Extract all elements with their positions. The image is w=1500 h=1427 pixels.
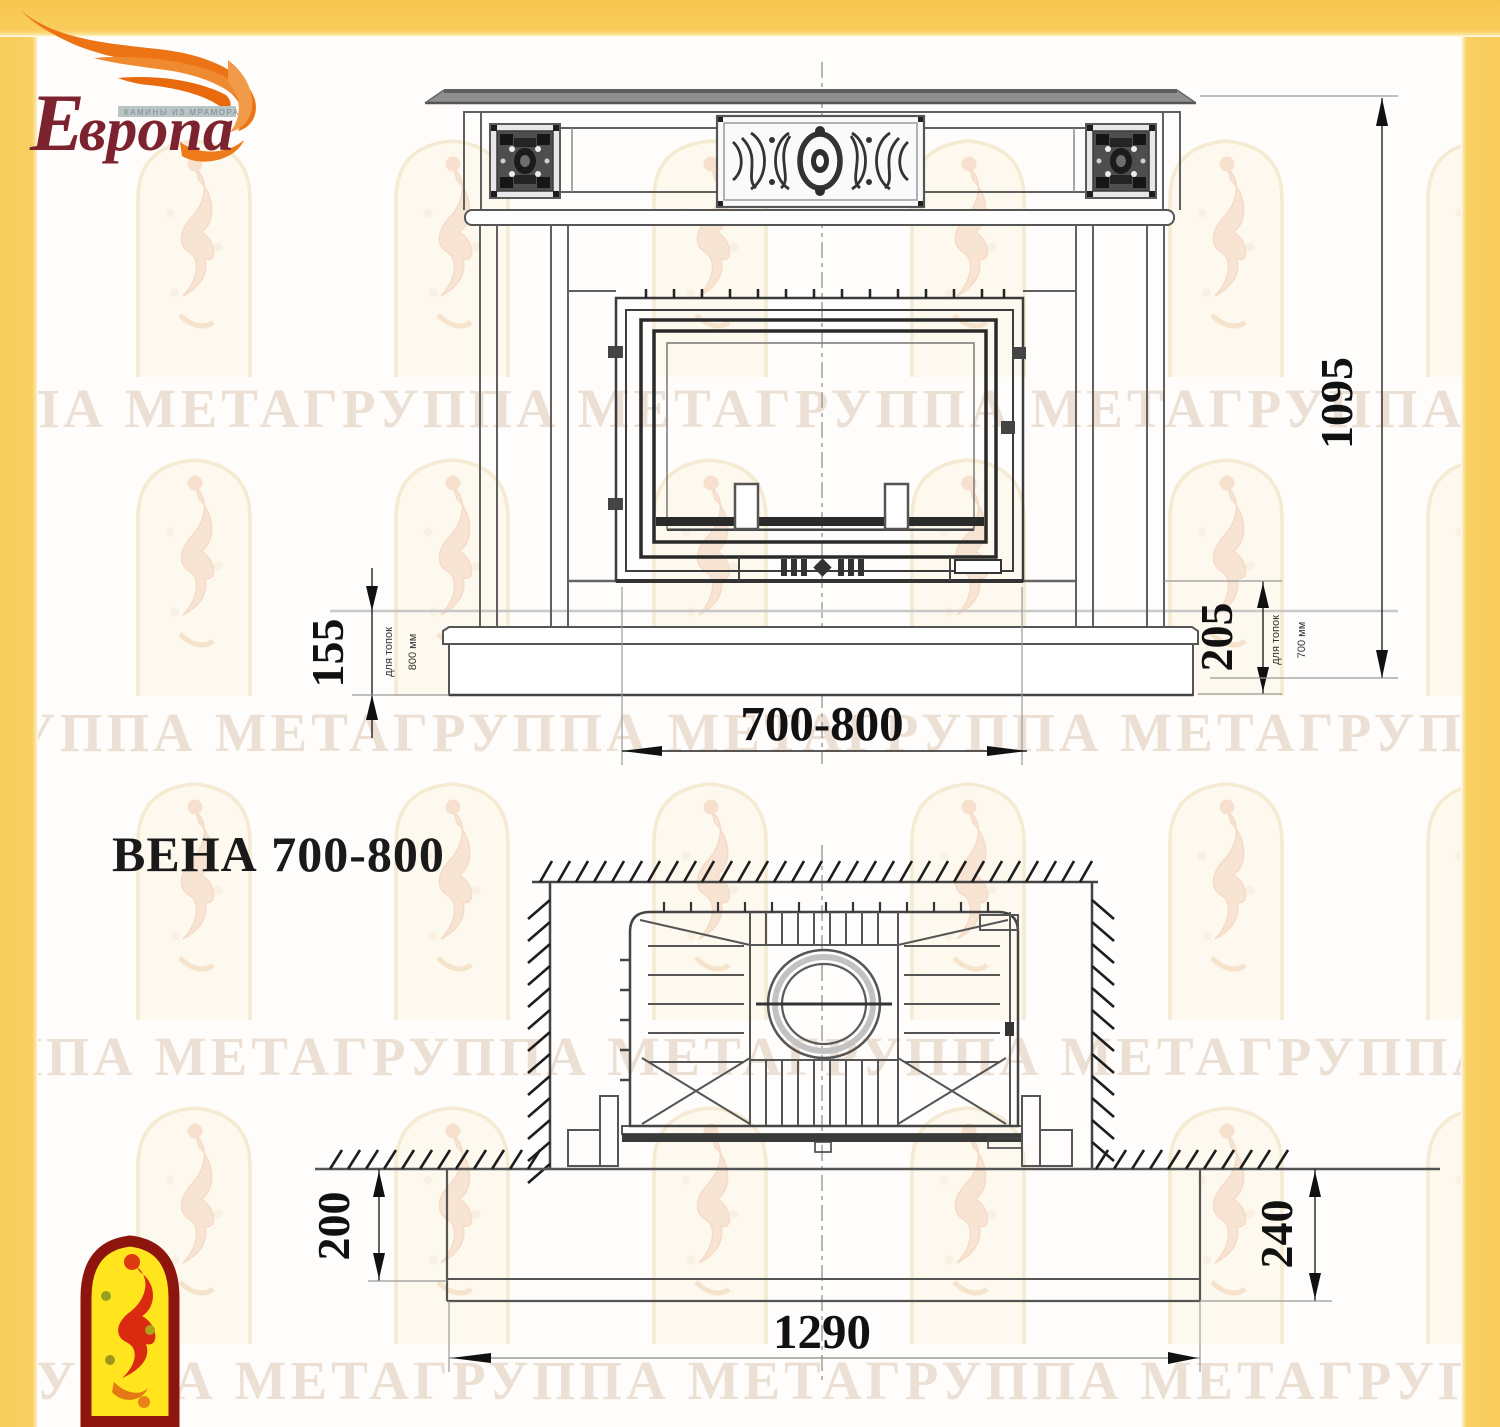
- svg-text:ВЕНА 700-800: ВЕНА 700-800: [112, 826, 445, 882]
- svg-text:1290: 1290: [773, 1304, 871, 1359]
- svg-text:700 мм: 700 мм: [1296, 622, 1308, 659]
- svg-text:800 мм: 800 мм: [407, 634, 419, 671]
- svg-text:205: 205: [1191, 603, 1242, 672]
- svg-text:для топок: для топок: [383, 627, 395, 677]
- svg-text:200: 200: [308, 1192, 359, 1261]
- svg-text:1095: 1095: [1311, 357, 1362, 449]
- svg-text:240: 240: [1251, 1200, 1302, 1269]
- svg-text:155: 155: [302, 619, 353, 688]
- svg-text:700-800: 700-800: [740, 696, 903, 751]
- svg-text:для топок: для топок: [1270, 615, 1282, 665]
